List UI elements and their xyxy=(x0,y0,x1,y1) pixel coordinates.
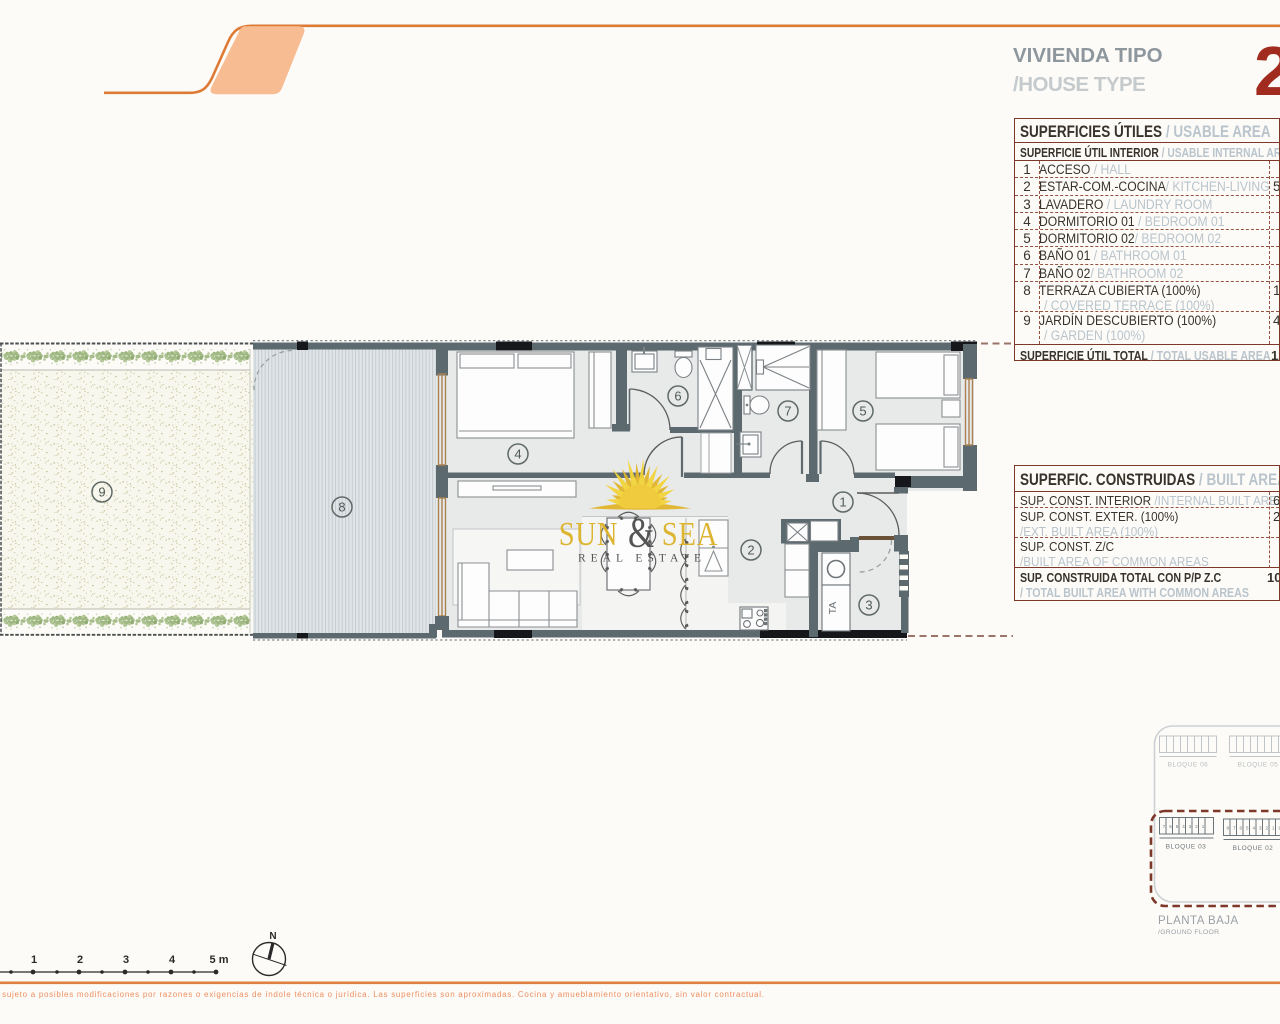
svg-text:7: 7 xyxy=(784,404,791,419)
svg-text:BLOQUE 05: BLOQUE 05 xyxy=(1238,762,1279,769)
svg-text:BLOQUE 02: BLOQUE 02 xyxy=(1233,845,1274,852)
svg-text:8: 8 xyxy=(1227,826,1230,831)
svg-text:SUN: SUN xyxy=(559,515,619,553)
svg-text:BLOQUE 06: BLOQUE 06 xyxy=(1168,762,1209,769)
svg-text:2: 2 xyxy=(747,543,754,558)
svg-text:1: 1 xyxy=(839,495,846,510)
svg-text:5: 5 xyxy=(1246,826,1249,831)
svg-text:N: N xyxy=(269,931,276,942)
svg-text:1: 1 xyxy=(1272,826,1275,831)
svg-text:6: 6 xyxy=(1240,826,1243,831)
svg-text:4: 4 xyxy=(1182,824,1185,829)
svg-text:5: 5 xyxy=(1176,824,1179,829)
svg-text:PLANTA BAJA: PLANTA BAJA xyxy=(1158,915,1239,927)
svg-text:4: 4 xyxy=(169,954,176,966)
svg-text:7: 7 xyxy=(1163,824,1166,829)
svg-text:1: 1 xyxy=(31,954,37,966)
svg-text:SEA: SEA xyxy=(662,515,718,553)
svg-text:8: 8 xyxy=(338,500,345,515)
svg-text:3: 3 xyxy=(865,598,872,613)
svg-text:BLOQUE 03: BLOQUE 03 xyxy=(1166,844,1207,851)
svg-text:3: 3 xyxy=(123,954,129,966)
svg-text:1: 1 xyxy=(1202,824,1205,829)
svg-text:5 m: 5 m xyxy=(210,954,229,966)
svg-text:6: 6 xyxy=(674,389,681,404)
svg-text:2: 2 xyxy=(1266,826,1269,831)
svg-text:5: 5 xyxy=(859,404,866,419)
svg-text:4: 4 xyxy=(1253,826,1256,831)
svg-text:2: 2 xyxy=(1195,824,1198,829)
svg-text:&: & xyxy=(628,511,654,557)
svg-text:9: 9 xyxy=(98,485,105,500)
svg-text:7: 7 xyxy=(1233,826,1236,831)
svg-text:3: 3 xyxy=(1259,826,1262,831)
svg-text:/GROUND FLOOR: /GROUND FLOOR xyxy=(1158,929,1219,936)
svg-text:3: 3 xyxy=(1189,824,1192,829)
svg-text:REAL ESTATE: REAL ESTATE xyxy=(578,553,706,565)
svg-text:6: 6 xyxy=(1169,824,1172,829)
svg-text:TA: TA xyxy=(827,602,839,615)
svg-text:2: 2 xyxy=(77,954,83,966)
svg-text:4: 4 xyxy=(514,447,521,462)
